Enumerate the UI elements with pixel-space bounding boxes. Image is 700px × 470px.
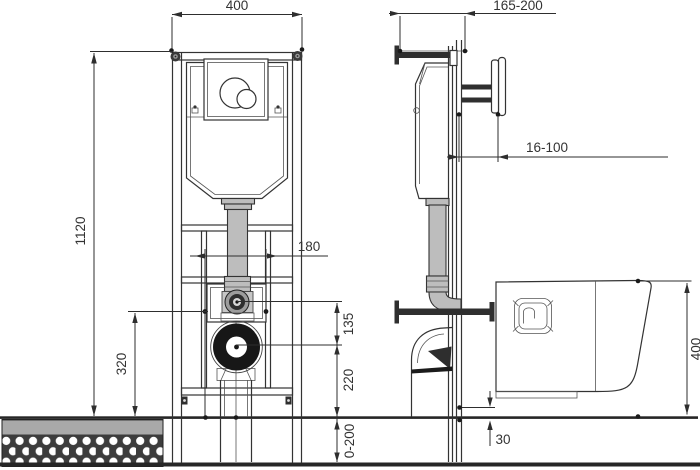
pipe-coupling xyxy=(225,277,251,292)
pipe-coupling-side xyxy=(427,276,449,292)
crossbar-lower xyxy=(182,388,293,395)
structural-floor-line xyxy=(0,463,700,467)
dim-fixing-height: 320 xyxy=(114,312,208,417)
aggregate-pattern xyxy=(2,435,163,466)
cistern-clip-side xyxy=(414,108,420,114)
wc-frame-installation-drawing: 400 1120 180 xyxy=(0,0,700,470)
dim-fixing-height-label: 320 xyxy=(114,353,129,376)
dim-frame-width-label: 400 xyxy=(226,0,249,13)
finished-floor-line xyxy=(0,416,698,419)
pan-fixing-recess-outer xyxy=(515,299,552,334)
flush-button-small xyxy=(237,90,256,109)
dim-bolt-spacing: 180 xyxy=(190,239,328,420)
bracket-rod-upper xyxy=(462,85,491,90)
dim-bolt-spacing-label: 180 xyxy=(298,239,321,254)
technical-drawing-page: 400 1120 180 xyxy=(0,0,700,470)
pan-fixing-hole xyxy=(524,308,535,324)
waste-elbow xyxy=(412,328,453,418)
dim-wall-distance-label: 16-100 xyxy=(526,140,568,155)
bracket-plate-inner xyxy=(492,60,499,113)
elbow-base-wedge xyxy=(412,367,453,374)
cistern-clip-left xyxy=(192,105,198,113)
pan-bottom-ledge xyxy=(496,392,577,399)
screed-layer xyxy=(2,420,163,435)
rod-end-plate xyxy=(395,301,400,324)
dim-pan-height-label: 400 xyxy=(689,338,700,361)
dim-inlet-offset-label: 135 xyxy=(341,313,356,336)
side-view xyxy=(395,40,652,462)
fixing-rods xyxy=(397,309,493,316)
waste-outlet xyxy=(211,321,263,380)
dim-wall-distance: 16-100 xyxy=(447,112,668,162)
screw-right xyxy=(293,51,303,61)
dim-frame-height-label: 1120 xyxy=(73,216,88,245)
screw-left xyxy=(171,52,181,62)
flush-pipe-collar xyxy=(225,204,252,210)
top-bracket-end xyxy=(395,46,400,65)
dim-pan-height: 400 xyxy=(636,279,700,419)
dim-leg-range-label: 0-200 xyxy=(342,424,357,459)
dimensions: 400 1120 180 xyxy=(73,0,700,462)
rod-pan-plate xyxy=(490,302,495,322)
flush-pipe xyxy=(228,210,248,277)
dim-right-stack: 135 220 0-200 xyxy=(236,302,357,463)
foot-bolt-left xyxy=(182,397,188,405)
top-bracket-plate xyxy=(450,51,457,66)
flush-pipe-side xyxy=(429,205,446,276)
foot-bolt-right xyxy=(286,397,292,405)
dim-outlet-height-label: 220 xyxy=(341,369,356,392)
cistern-side-inner xyxy=(420,67,449,184)
flush-pipe-flange-side xyxy=(426,199,449,206)
dim-depth-range: 165-200 xyxy=(389,0,556,53)
dim-floor-gap: 30 xyxy=(457,391,510,447)
flush-pipe-flange xyxy=(222,199,255,205)
cistern-clip-right xyxy=(275,105,281,113)
wall-bracket xyxy=(462,58,506,116)
dim-frame-width: 400 xyxy=(169,0,304,53)
top-wall-bracket xyxy=(397,52,453,58)
bracket-rod-lower xyxy=(462,98,491,103)
front-view xyxy=(171,51,303,463)
flow-arrow xyxy=(428,347,452,370)
toilet-pan xyxy=(496,281,651,399)
dim-floor-gap-label: 30 xyxy=(496,432,511,447)
bracket-plate-outer xyxy=(499,58,506,116)
dim-depth-range-label: 165-200 xyxy=(493,0,543,13)
